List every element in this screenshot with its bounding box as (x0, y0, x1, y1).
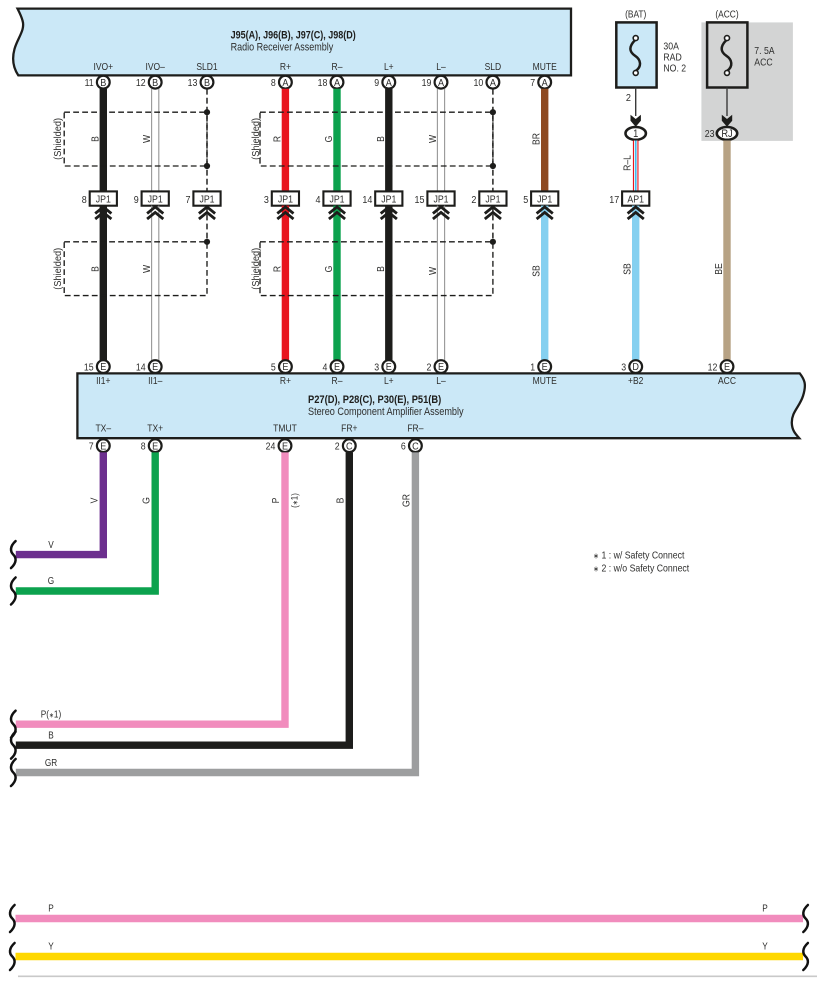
svg-text:E: E (100, 441, 106, 453)
svg-text:B: B (48, 730, 54, 741)
svg-text:L+: L+ (384, 61, 394, 73)
svg-text:II1–: II1– (148, 375, 163, 387)
svg-text:1: 1 (633, 128, 639, 140)
svg-text:18: 18 (318, 76, 328, 88)
svg-text:W: W (142, 135, 153, 143)
svg-text:JP1: JP1 (381, 194, 396, 206)
svg-text:9: 9 (134, 194, 139, 206)
svg-text:MUTE: MUTE (533, 61, 557, 73)
svg-text:RAD: RAD (663, 52, 682, 63)
svg-text:+B2: +B2 (628, 375, 643, 387)
svg-text:JP1: JP1 (433, 194, 448, 206)
svg-text:L+: L+ (384, 375, 394, 387)
svg-text:2: 2 (471, 194, 476, 206)
svg-text:E: E (724, 362, 730, 374)
svg-text:R+: R+ (280, 375, 292, 387)
svg-text:JP1: JP1 (485, 194, 500, 206)
svg-text:C: C (412, 441, 419, 453)
svg-text:FR+: FR+ (341, 423, 358, 435)
svg-text:JP1: JP1 (537, 194, 552, 206)
svg-text:14: 14 (136, 361, 146, 373)
svg-text:IVO–: IVO– (145, 61, 165, 73)
svg-text:E: E (152, 441, 158, 453)
svg-text:Stereo Component Amplifier Ass: Stereo Component Amplifier Assembly (308, 406, 464, 418)
svg-text:R–: R– (332, 375, 344, 387)
svg-text:(Shielded): (Shielded) (250, 118, 261, 160)
svg-text:3: 3 (374, 361, 379, 373)
svg-text:13: 13 (188, 76, 198, 88)
svg-text:SLD1: SLD1 (196, 61, 217, 73)
svg-text:W: W (428, 267, 439, 275)
svg-text:B: B (375, 266, 386, 272)
svg-text:P: P (762, 903, 768, 914)
svg-text:17: 17 (609, 194, 619, 206)
svg-text:1: 1 (530, 361, 535, 373)
svg-text:3: 3 (621, 361, 626, 373)
svg-text:9: 9 (374, 76, 379, 88)
svg-text:(ACC): (ACC) (715, 9, 738, 20)
svg-text:IVO+: IVO+ (93, 61, 113, 73)
svg-text:FR–: FR– (407, 423, 424, 435)
svg-text:2: 2 (427, 361, 432, 373)
svg-text:E: E (438, 362, 444, 374)
svg-text:JP1: JP1 (96, 194, 111, 206)
svg-text:8: 8 (271, 76, 276, 88)
svg-text:BR: BR (531, 133, 542, 145)
svg-text:AP1: AP1 (627, 194, 644, 206)
svg-text:R: R (272, 136, 283, 143)
svg-text:7: 7 (186, 194, 191, 206)
svg-text:B: B (100, 77, 106, 89)
svg-text:(Shielded): (Shielded) (250, 248, 261, 290)
svg-text:P: P (271, 498, 282, 504)
svg-text:G: G (324, 266, 335, 273)
svg-text:E: E (386, 362, 392, 374)
svg-text:JP1: JP1 (329, 194, 344, 206)
svg-text:RJ: RJ (721, 128, 732, 140)
svg-text:30A: 30A (663, 41, 679, 52)
svg-text:7. 5A: 7. 5A (754, 46, 775, 57)
svg-text:A: A (490, 77, 497, 89)
svg-text:24: 24 (266, 440, 276, 452)
svg-text:B: B (204, 77, 210, 89)
svg-text:E: E (282, 362, 288, 374)
svg-text:V: V (48, 539, 54, 550)
svg-text:B: B (335, 498, 346, 504)
svg-text:A: A (438, 77, 445, 89)
svg-text:19: 19 (422, 76, 432, 88)
svg-text:V: V (89, 497, 100, 504)
svg-text:10: 10 (474, 76, 484, 88)
svg-text:11: 11 (85, 76, 94, 88)
svg-text:5: 5 (271, 361, 276, 373)
svg-text:SB: SB (531, 265, 542, 277)
svg-text:E: E (152, 362, 158, 374)
svg-text:15: 15 (84, 361, 94, 373)
svg-text:P: P (48, 903, 54, 914)
svg-text:(BAT): (BAT) (625, 9, 646, 20)
svg-text:Y: Y (48, 941, 54, 952)
svg-text:D: D (632, 362, 639, 374)
svg-text:E: E (334, 362, 340, 374)
svg-text:∗ 1 : w/ Safety Connect: ∗ 1 : w/ Safety Connect (593, 550, 685, 561)
svg-text:Radio Receiver Assembly: Radio Receiver Assembly (231, 42, 334, 54)
svg-text:A: A (386, 77, 393, 89)
svg-text:B: B (90, 266, 101, 272)
svg-text:6: 6 (401, 440, 406, 452)
svg-text:TMUT: TMUT (273, 423, 297, 435)
svg-text:L–: L– (436, 375, 446, 387)
svg-text:4: 4 (316, 194, 322, 206)
svg-text:GR: GR (401, 494, 412, 507)
svg-text:SB: SB (622, 263, 633, 275)
svg-text:14: 14 (362, 194, 373, 206)
svg-text:4: 4 (323, 361, 328, 373)
svg-text:SLD: SLD (485, 61, 502, 73)
svg-text:JP1: JP1 (148, 194, 163, 206)
svg-text:G: G (48, 576, 54, 587)
svg-text:B: B (375, 136, 386, 142)
svg-text:JP1: JP1 (199, 194, 214, 206)
svg-text:E: E (542, 362, 548, 374)
svg-text:7: 7 (89, 440, 94, 452)
svg-text:G: G (324, 136, 335, 143)
svg-text:12: 12 (136, 76, 146, 88)
svg-text:J95(A), J96(B), J97(C), J98(D): J95(A), J96(B), J97(C), J98(D) (231, 30, 356, 42)
svg-text:Y: Y (762, 941, 768, 952)
svg-text:ACC: ACC (718, 375, 736, 387)
svg-text:(Shielded): (Shielded) (52, 248, 63, 290)
svg-text:(∗1): (∗1) (289, 493, 300, 508)
svg-text:8: 8 (141, 440, 146, 452)
svg-text:G: G (141, 497, 152, 504)
svg-text:23: 23 (705, 128, 715, 140)
svg-text:W: W (428, 135, 439, 143)
svg-text:A: A (542, 77, 549, 89)
svg-text:E: E (100, 362, 106, 374)
svg-text:2: 2 (335, 440, 340, 452)
svg-text:W: W (142, 265, 153, 273)
svg-text:NO. 2: NO. 2 (663, 63, 686, 74)
svg-text:C: C (346, 441, 353, 453)
svg-text:8: 8 (82, 194, 87, 206)
svg-text:3: 3 (264, 194, 269, 206)
svg-text:GR: GR (45, 758, 58, 769)
svg-text:ACC: ACC (754, 57, 773, 68)
svg-text:R–: R– (332, 61, 344, 73)
svg-text:(Shielded): (Shielded) (52, 118, 63, 160)
svg-text:∗ 2 : w/o Safety Connect: ∗ 2 : w/o Safety Connect (593, 563, 690, 574)
svg-text:II1+: II1+ (96, 375, 111, 387)
svg-text:B: B (152, 77, 158, 89)
svg-text:A: A (282, 77, 289, 89)
svg-text:TX–: TX– (95, 423, 111, 435)
svg-text:R: R (272, 266, 283, 273)
svg-text:TX+: TX+ (147, 423, 163, 435)
svg-text:R–L: R–L (622, 155, 633, 171)
svg-text:P27(D), P28(C), P30(E), P51(B): P27(D), P28(C), P30(E), P51(B) (308, 395, 441, 407)
svg-text:R+: R+ (280, 61, 292, 73)
svg-text:MUTE: MUTE (533, 375, 557, 387)
svg-text:2: 2 (626, 93, 631, 105)
svg-text:E: E (282, 441, 288, 453)
svg-text:B: B (90, 136, 101, 142)
svg-text:15: 15 (415, 194, 425, 206)
svg-text:7: 7 (530, 76, 535, 88)
svg-text:L–: L– (436, 61, 446, 73)
svg-text:JP1: JP1 (278, 194, 293, 206)
svg-text:12: 12 (708, 361, 718, 373)
svg-text:A: A (334, 77, 341, 89)
svg-text:BE: BE (714, 263, 725, 275)
svg-text:5: 5 (523, 194, 528, 206)
